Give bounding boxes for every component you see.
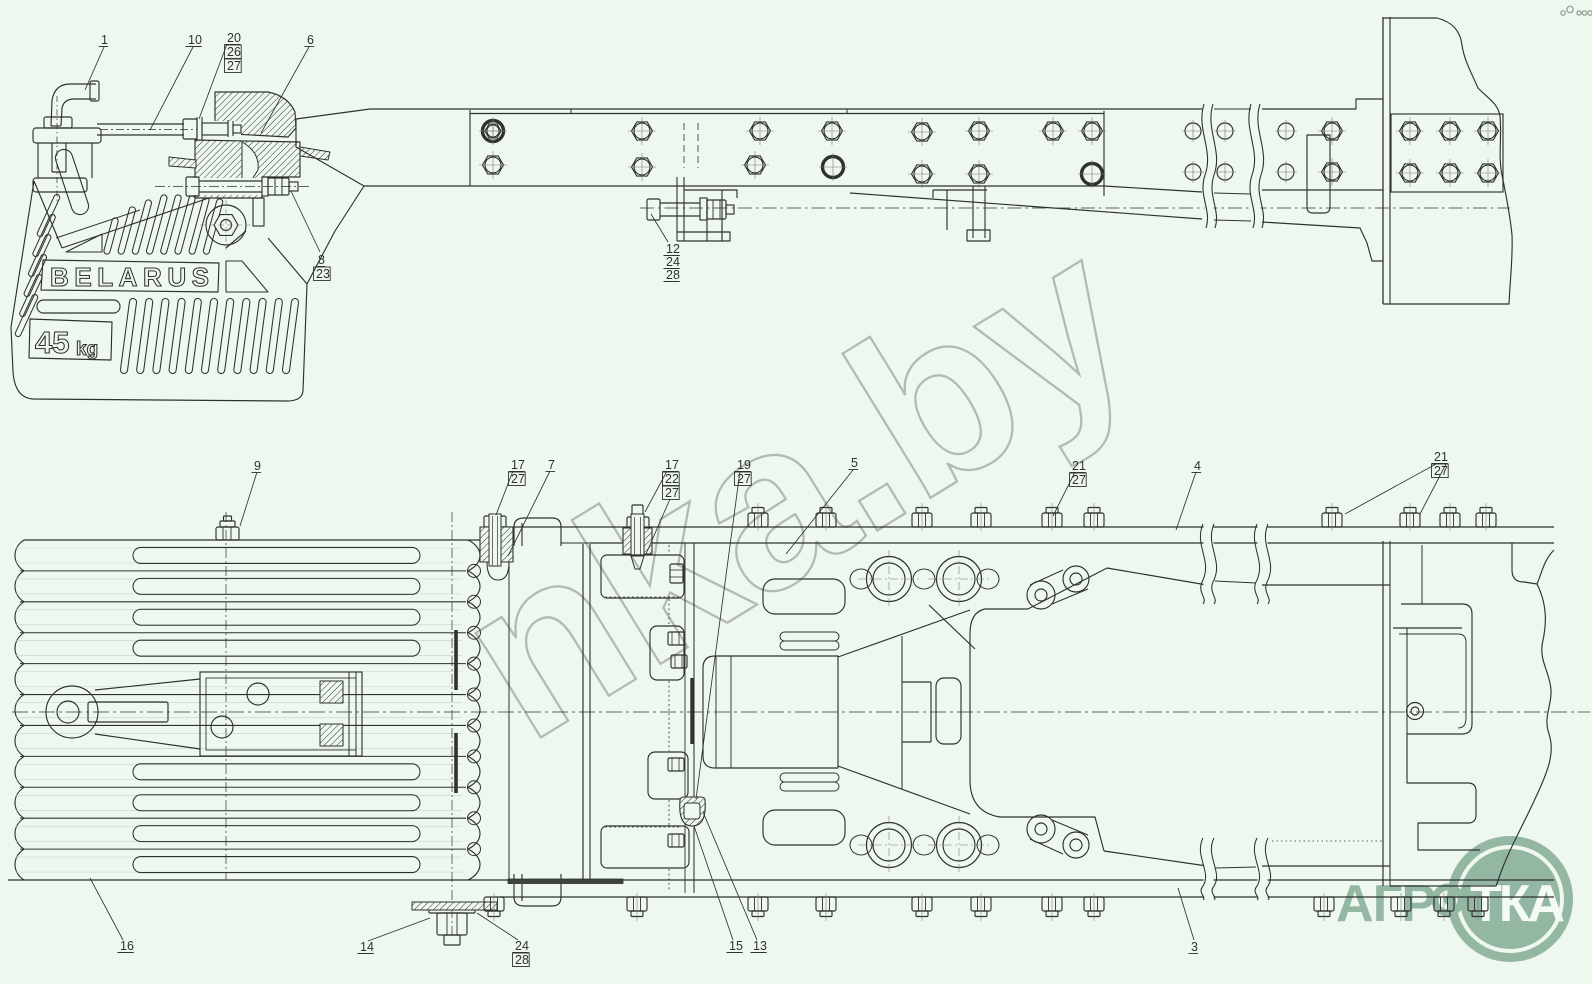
svg-text:21: 21 <box>1434 450 1448 464</box>
svg-text:6: 6 <box>307 33 314 47</box>
svg-text:27: 27 <box>227 59 241 73</box>
svg-text:ТКА: ТКА <box>1470 875 1565 933</box>
svg-text:1: 1 <box>101 33 108 47</box>
svg-text:BELARUS: BELARUS <box>50 262 210 292</box>
svg-text:8: 8 <box>318 253 325 267</box>
svg-text:27: 27 <box>1434 464 1448 478</box>
svg-text:13: 13 <box>753 939 767 953</box>
svg-text:19: 19 <box>737 458 751 472</box>
svg-text:10: 10 <box>188 33 202 47</box>
svg-text:17: 17 <box>511 458 525 472</box>
svg-text:kg: kg <box>76 339 98 360</box>
svg-text:23: 23 <box>316 267 330 281</box>
svg-text:16: 16 <box>120 939 134 953</box>
svg-text:14: 14 <box>360 940 374 954</box>
svg-text:АГР: АГР <box>1336 875 1436 933</box>
svg-text:7: 7 <box>548 458 555 472</box>
svg-text:27: 27 <box>511 472 525 486</box>
svg-text:24: 24 <box>515 939 529 953</box>
svg-text:28: 28 <box>666 268 680 282</box>
svg-text:20: 20 <box>227 31 241 45</box>
svg-text:5: 5 <box>851 456 858 470</box>
svg-text:4: 4 <box>1194 459 1201 473</box>
svg-text:3: 3 <box>1191 940 1198 954</box>
svg-text:26: 26 <box>227 45 241 59</box>
svg-text:28: 28 <box>515 953 529 967</box>
svg-text:12: 12 <box>666 242 680 256</box>
svg-text:9: 9 <box>254 459 261 473</box>
svg-text:21: 21 <box>1072 459 1086 473</box>
svg-text:22: 22 <box>665 472 679 486</box>
svg-text:24: 24 <box>666 255 680 269</box>
svg-text:17: 17 <box>665 458 679 472</box>
svg-text:15: 15 <box>729 939 743 953</box>
svg-text:27: 27 <box>665 486 679 500</box>
svg-text:45: 45 <box>35 325 69 360</box>
svg-text:27: 27 <box>1072 473 1086 487</box>
